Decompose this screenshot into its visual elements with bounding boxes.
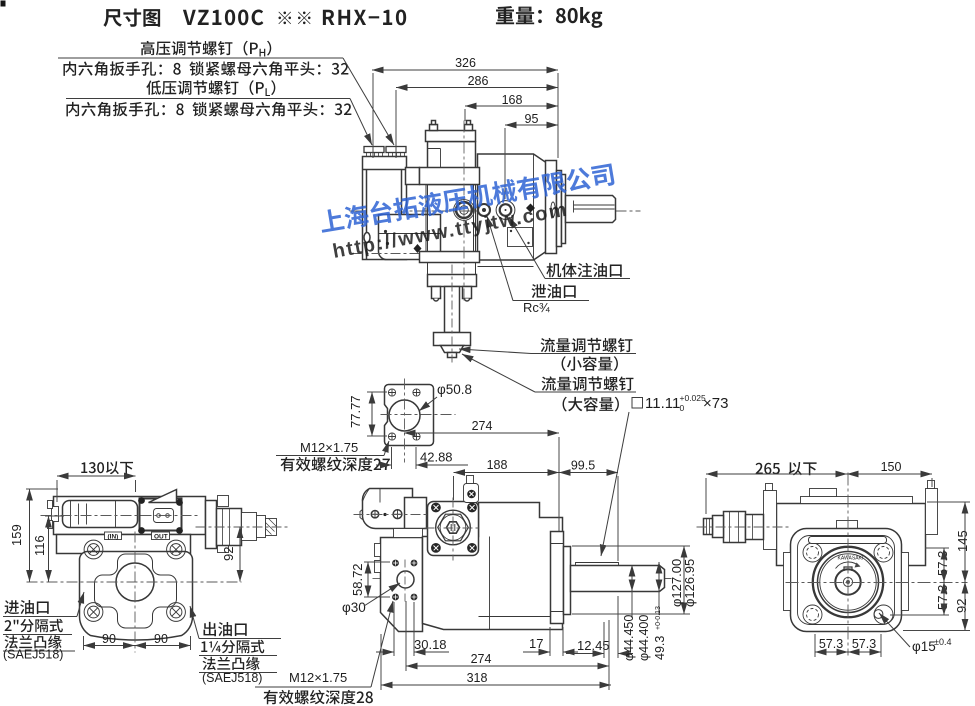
svg-text:49.3: 49.3: [653, 636, 667, 660]
svg-text:274: 274: [472, 419, 493, 433]
svg-text:0: 0: [680, 403, 685, 413]
svg-text:57.3: 57.3: [819, 637, 843, 651]
svg-text:+0-0.13: +0-0.13: [655, 606, 662, 630]
svg-text:φ44.450: φ44.450: [622, 615, 636, 661]
svg-text:92: 92: [221, 547, 236, 561]
svg-text:φ126.95: φ126.95: [682, 559, 697, 607]
svg-text:φ15: φ15: [912, 639, 936, 654]
svg-text:77.77: 77.77: [348, 395, 363, 428]
svg-text:57.3: 57.3: [852, 637, 876, 651]
svg-text:57.3: 57.3: [935, 585, 950, 610]
svg-text:99.5: 99.5: [571, 459, 595, 473]
svg-text:φ30: φ30: [342, 600, 366, 615]
svg-text:92: 92: [954, 599, 969, 613]
svg-text:168: 168: [502, 93, 523, 107]
svg-text:274: 274: [471, 652, 492, 666]
svg-text:150: 150: [881, 460, 902, 474]
svg-text:±0.4: ±0.4: [934, 637, 951, 647]
svg-text:58.72: 58.72: [350, 563, 365, 596]
svg-text:42.88: 42.88: [420, 450, 453, 465]
svg-text:188: 188: [487, 458, 508, 472]
svg-text:90: 90: [102, 632, 116, 646]
svg-text:318: 318: [467, 671, 488, 685]
svg-text:×73: ×73: [703, 395, 728, 412]
svg-text:(SAEJ518): (SAEJ518): [3, 648, 63, 662]
svg-text:φ50.8: φ50.8: [437, 382, 472, 397]
svg-text:φ44.400: φ44.400: [637, 615, 651, 661]
svg-text:90: 90: [154, 632, 168, 646]
svg-text:(SAEJ518): (SAEJ518): [202, 671, 262, 685]
svg-text:159: 159: [9, 524, 24, 546]
svg-text:M12×1.75: M12×1.75: [289, 670, 347, 685]
svg-text:Rc¾: Rc¾: [523, 300, 550, 315]
svg-text:326: 326: [455, 56, 476, 70]
svg-text:286: 286: [468, 74, 489, 88]
svg-text:57.3: 57.3: [935, 551, 950, 576]
svg-text:17: 17: [529, 636, 543, 651]
svg-text:(IN): (IN): [108, 534, 119, 541]
svg-text:30.18: 30.18: [414, 637, 447, 652]
svg-text:OUT: OUT: [154, 534, 168, 541]
svg-text:11.11: 11.11: [645, 395, 680, 412]
svg-text:95: 95: [525, 112, 539, 126]
svg-text:145: 145: [955, 530, 970, 552]
svg-text:M12×1.75: M12×1.75: [300, 440, 358, 455]
svg-text:12.45: 12.45: [577, 638, 610, 653]
svg-text:116: 116: [32, 535, 47, 556]
svg-text:KAWASAKI: KAWASAKI: [838, 556, 864, 562]
